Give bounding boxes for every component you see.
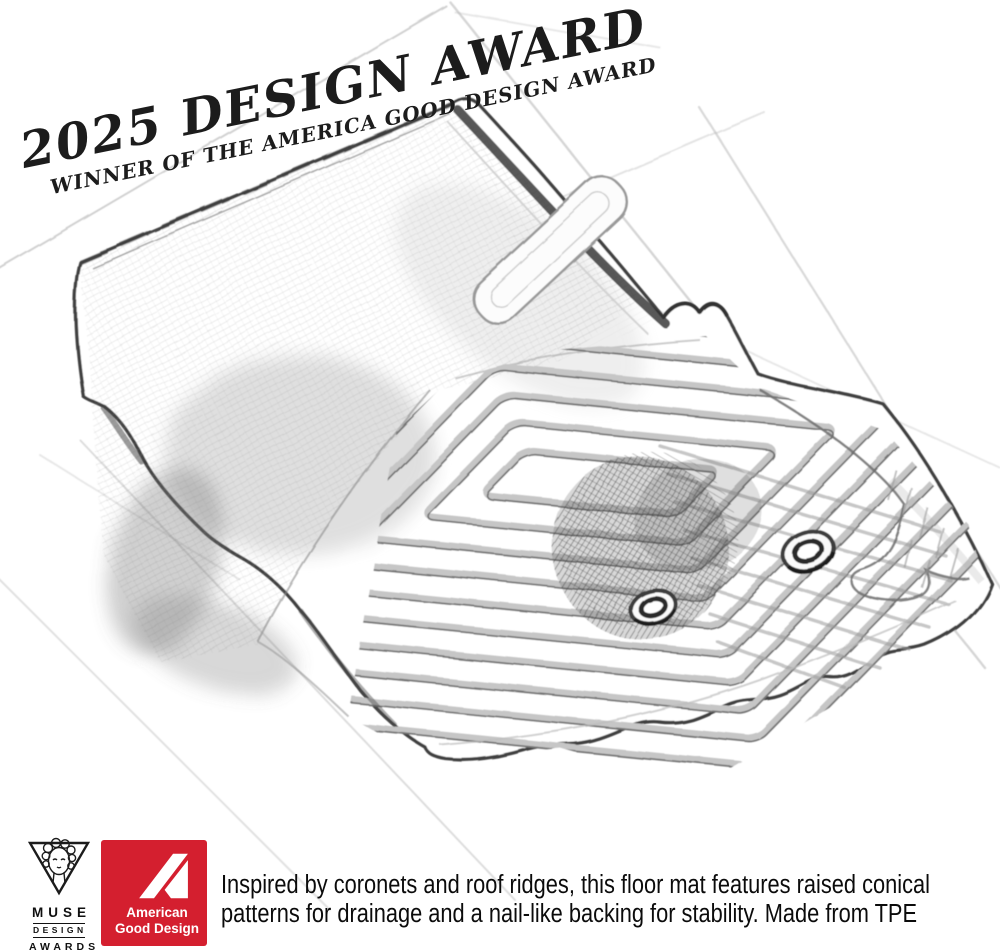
muse-design-awards-logo: MUSE DESIGN AWARDS [25,836,93,952]
agd-logo-line1: American [107,905,207,921]
product-image: 2025 DESIGN AWARD WINNER OF THE AMERICA … [0,0,1000,952]
agd-logo-line2: Good Design [107,921,207,937]
description-line2: patterns for drainage and a nail-like ba… [221,900,956,929]
muse-logo-name: MUSE [25,905,93,920]
muse-logo-awards: AWARDS [25,941,93,952]
american-good-design-logo: American Good Design [101,840,207,946]
muse-logo-design: DESIGN [33,923,85,938]
description-line1: Inspired by coronets and roof ridges, th… [221,871,956,900]
muse-head-in-triangle-icon [26,836,92,898]
product-description: Inspired by coronets and roof ridges, th… [221,871,956,929]
agd-logo-text: American Good Design [101,905,207,937]
